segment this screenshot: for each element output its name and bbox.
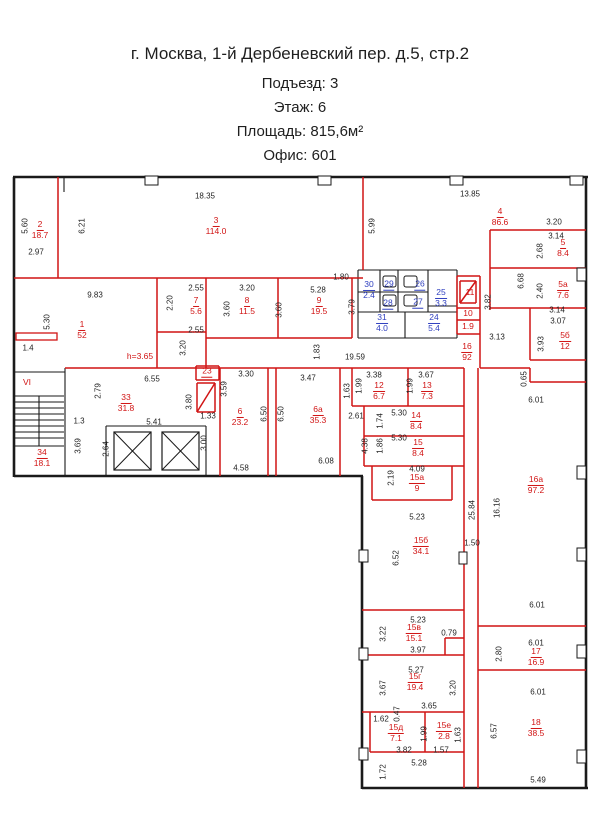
room-number: 15а xyxy=(409,473,425,484)
room-label: 11 xyxy=(465,288,476,298)
dimension-label: 3.93 xyxy=(537,336,546,352)
dimension-label: 2.79 xyxy=(94,383,103,399)
room-number: 2 xyxy=(37,220,44,231)
dimension-label: 1.80 xyxy=(333,273,349,282)
dimension-label: 3.07 xyxy=(550,317,566,326)
room-number: 7 xyxy=(193,296,200,307)
room-area: 86.6 xyxy=(492,218,509,228)
dimension-label: 5.28 xyxy=(411,759,427,768)
dimension-label: 2.97 xyxy=(28,248,44,257)
room-area: 16.9 xyxy=(528,658,545,668)
dimension-label: 3.82 xyxy=(396,746,412,755)
dimension-label: 1.72 xyxy=(379,764,388,780)
dimension-label: 25.84 xyxy=(468,500,477,520)
dimension-label: 3.67 xyxy=(418,371,434,380)
room-number: 1.9 xyxy=(461,322,475,332)
room-label: 15б34.1 xyxy=(413,536,430,556)
room-label: 245.4 xyxy=(428,313,440,333)
dimension-label: 2.61 xyxy=(348,412,364,421)
room-label: 10 xyxy=(462,309,473,319)
dimension-label: 1.4 xyxy=(22,344,33,353)
dimension-label: 1.86 xyxy=(376,438,385,454)
room-label: 1.9 xyxy=(461,322,475,332)
room-number: 31 xyxy=(376,313,387,324)
room-number: 27 xyxy=(412,298,423,309)
room-area: 114.0 xyxy=(206,227,227,237)
room-label: 1716.9 xyxy=(528,647,545,667)
dimension-label: 3.20 xyxy=(546,218,562,227)
room-number: 25 xyxy=(435,288,446,299)
dimension-label: 1.74 xyxy=(376,413,385,429)
dimension-label: 13.85 xyxy=(460,190,480,199)
dimension-label: 5.23 xyxy=(410,616,426,625)
room-label: 75.6 xyxy=(190,296,202,316)
room-area: 4.0 xyxy=(376,324,388,334)
dimension-label: 5.28 xyxy=(310,286,326,295)
room-label: 158.4 xyxy=(412,438,424,458)
dimension-label: 1.99 xyxy=(355,378,364,394)
room-area: 38.5 xyxy=(528,729,545,739)
dimension-label: 5.99 xyxy=(368,218,377,234)
room-area: 18.1 xyxy=(34,459,51,469)
room-label: 5а7.6 xyxy=(557,280,569,300)
room-area: 8.4 xyxy=(412,449,424,459)
room-area: 2.4 xyxy=(363,291,375,301)
dimension-label: 3.59 xyxy=(220,381,229,397)
room-label: 137.3 xyxy=(421,381,433,401)
room-number: 6а xyxy=(312,405,323,416)
dimension-label: 1.99 xyxy=(420,726,429,742)
room-area: 5.4 xyxy=(428,324,440,334)
room-area: 31.8 xyxy=(118,404,135,414)
room-number: 28 xyxy=(382,299,393,310)
dimension-label: 2.19 xyxy=(387,470,396,486)
dimension-label: 1.99 xyxy=(406,378,415,394)
room-number: 14 xyxy=(410,411,421,422)
room-area: 6.7 xyxy=(373,392,385,402)
dimension-label: 3.22 xyxy=(379,626,388,642)
dimension-label: 0.65 xyxy=(520,371,529,387)
room-label: 623.2 xyxy=(232,407,249,427)
room-label: 26 xyxy=(414,280,425,291)
room-label: 1838.5 xyxy=(528,718,545,738)
room-label: 58.4 xyxy=(557,238,569,258)
room-label: 253.3 xyxy=(435,288,447,308)
dimension-label: 1.83 xyxy=(313,344,322,360)
dimension-label: 3.79 xyxy=(348,299,357,315)
dimension-label: 1.50 xyxy=(464,539,480,548)
dimension-label: 0.79 xyxy=(441,629,457,638)
room-number: 18 xyxy=(530,718,541,729)
dimension-label: 3.30 xyxy=(238,370,254,379)
room-number: 29 xyxy=(383,280,394,291)
room-number: 15в xyxy=(406,623,422,634)
room-label: 15в15.1 xyxy=(406,623,423,643)
room-number: 4 xyxy=(497,207,504,218)
room-label: 218.7 xyxy=(32,220,49,240)
dimension-label: 4.09 xyxy=(409,465,425,474)
room-area: 8.4 xyxy=(557,249,569,259)
room-label: 126.7 xyxy=(373,381,385,401)
plan-note: VI xyxy=(23,377,31,387)
room-label: 148.4 xyxy=(410,411,422,431)
room-label: 15е2.8 xyxy=(436,721,452,741)
dimension-label: 3.60 xyxy=(223,301,232,317)
dimension-label: 3.20 xyxy=(239,284,255,293)
room-area: 23.2 xyxy=(232,418,249,428)
dimension-label: 6.68 xyxy=(517,273,526,289)
room-label: 28 xyxy=(382,299,393,310)
dimension-label: 6.01 xyxy=(528,396,544,405)
plan-note: h=3.65 xyxy=(127,351,153,361)
dimension-label: 2.40 xyxy=(536,283,545,299)
dimension-label: 5.41 xyxy=(146,418,162,427)
dimension-label: 1.3 xyxy=(73,417,84,426)
dimension-label: 19.59 xyxy=(345,353,365,362)
room-number: 6 xyxy=(237,407,244,418)
room-label: 5б12 xyxy=(559,331,571,351)
dimension-label: 6.52 xyxy=(392,550,401,566)
dimension-label: 6.55 xyxy=(144,375,160,384)
room-number: 17 xyxy=(530,647,541,658)
dimension-label: 6.50 xyxy=(277,406,286,422)
room-number: 15д xyxy=(388,723,404,734)
room-area: 3.3 xyxy=(435,299,447,309)
dimension-label: 6.21 xyxy=(78,218,87,234)
room-label: 919.5 xyxy=(311,296,328,316)
room-number: 3 xyxy=(213,216,220,227)
dimension-label: 5.30 xyxy=(391,434,407,443)
room-number: 8 xyxy=(244,296,251,307)
dimension-label: 2.80 xyxy=(495,646,504,662)
dimension-label: 3.00 xyxy=(200,435,209,451)
dimension-label: 18.35 xyxy=(195,192,215,201)
room-label: 1692 xyxy=(461,342,472,362)
room-label: 486.6 xyxy=(492,207,509,227)
room-number: 15е xyxy=(436,721,452,732)
room-label: 27 xyxy=(412,298,423,309)
room-area: 7.3 xyxy=(421,392,433,402)
dimension-label: 4.58 xyxy=(233,464,249,473)
room-number: 30 xyxy=(363,280,374,291)
room-label: 314.0 xyxy=(376,313,388,333)
room-area: 97.2 xyxy=(528,486,545,496)
dimension-label: 2.55 xyxy=(188,326,204,335)
room-number: 12 xyxy=(373,381,384,392)
dimension-label: 6.50 xyxy=(260,406,269,422)
dimension-label: 1.62 xyxy=(373,715,389,724)
room-number: 16 xyxy=(461,342,472,353)
dimension-label: 5.27 xyxy=(408,666,424,675)
dimension-label: 1.63 xyxy=(343,383,352,399)
room-number: 16а xyxy=(528,475,544,486)
dimension-label: 6.01 xyxy=(529,601,545,610)
page: { "header": { "line1": "г. Москва, 1-й Д… xyxy=(0,0,600,828)
room-number: 26 xyxy=(414,280,425,291)
room-number: 23 xyxy=(201,367,212,378)
dimension-label: 3.14 xyxy=(548,232,564,241)
dimension-label: 2.68 xyxy=(536,243,545,259)
room-area: 18.7 xyxy=(32,231,49,241)
dimension-label: 2.64 xyxy=(102,441,111,457)
dimension-label: 3.38 xyxy=(366,371,382,380)
dimension-label: 3.69 xyxy=(74,438,83,454)
dimension-label: 3.20 xyxy=(179,340,188,356)
room-number: 5б xyxy=(559,331,571,342)
dimension-label: 3.65 xyxy=(421,702,437,711)
dimension-label: 2.20 xyxy=(166,295,175,311)
room-label: 152 xyxy=(77,320,86,340)
room-number: 33 xyxy=(120,393,131,404)
dimension-label: 6.57 xyxy=(490,723,499,739)
room-number: 11 xyxy=(465,288,476,298)
dimension-label: 3.20 xyxy=(449,680,458,696)
room-area: 12 xyxy=(560,342,569,352)
room-number: 1 xyxy=(79,320,86,331)
dimension-label: 5.60 xyxy=(21,218,30,234)
dimension-label: 16.16 xyxy=(493,498,502,518)
dimension-label: 6.01 xyxy=(530,688,546,697)
room-label: 15г19.4 xyxy=(407,672,424,692)
room-number: 9 xyxy=(316,296,323,307)
dimension-label: 3.80 xyxy=(185,394,194,410)
room-area: 11.5 xyxy=(239,307,255,317)
dimension-label: 3.47 xyxy=(300,374,316,383)
dimension-label: 1.57 xyxy=(433,746,449,755)
floor-plan: 218.73114.0486.658.45а7.65б1215275.6811.… xyxy=(0,0,600,828)
room-area: 19.4 xyxy=(407,683,424,693)
room-number: 15 xyxy=(412,438,423,449)
dimension-label: 3.13 xyxy=(489,333,505,342)
room-number: 13 xyxy=(421,381,432,392)
room-label: 302.4 xyxy=(363,280,375,300)
room-area: 7.1 xyxy=(390,734,402,744)
room-number: 15б xyxy=(413,536,429,547)
room-area: 9 xyxy=(415,484,420,494)
dimension-label: 3.67 xyxy=(379,680,388,696)
room-label: 15а9 xyxy=(409,473,425,493)
room-area: 92 xyxy=(462,353,471,363)
room-label: 3418.1 xyxy=(34,448,51,468)
room-area: 5.6 xyxy=(190,307,202,317)
dimension-label: 3.82 xyxy=(484,294,493,310)
room-label: 23 xyxy=(201,367,212,378)
room-area: 8.4 xyxy=(410,422,422,432)
dimension-label: 3.60 xyxy=(275,302,284,318)
room-area: 7.6 xyxy=(557,291,569,301)
room-label: 29 xyxy=(383,280,394,291)
room-area: 15.1 xyxy=(406,634,423,644)
room-label: 811.5 xyxy=(239,296,255,316)
dimension-label: 0.47 xyxy=(393,706,402,722)
dimension-label: 5.30 xyxy=(391,409,407,418)
dimension-label: 1.33 xyxy=(200,412,216,421)
room-number: 5а xyxy=(557,280,568,291)
room-label: 3114.0 xyxy=(206,216,227,236)
dimension-label: 4.38 xyxy=(361,438,370,454)
floor-plan-labels: 218.73114.0486.658.45а7.65б1215275.6811.… xyxy=(0,0,600,828)
room-area: 2.8 xyxy=(438,732,450,742)
room-area: 52 xyxy=(77,331,86,341)
room-label: 3331.8 xyxy=(118,393,135,413)
room-area: 19.5 xyxy=(311,307,328,317)
room-label: 16а97.2 xyxy=(528,475,545,495)
room-label: 6а35.3 xyxy=(310,405,327,425)
room-area: 35.3 xyxy=(310,416,327,426)
dimension-label: 3.14 xyxy=(549,306,565,315)
dimension-label: 5.23 xyxy=(409,513,425,522)
room-number: 24 xyxy=(428,313,439,324)
room-number: 10 xyxy=(462,309,473,319)
dimension-label: 6.01 xyxy=(528,639,544,648)
dimension-label: 5.49 xyxy=(530,776,546,785)
dimension-label: 9.83 xyxy=(87,291,103,300)
room-number: 34 xyxy=(36,448,47,459)
dimension-label: 3.97 xyxy=(410,646,426,655)
dimension-label: 1.63 xyxy=(454,727,463,743)
dimension-label: 5.30 xyxy=(43,314,52,330)
room-label: 15д7.1 xyxy=(388,723,404,743)
room-area: 34.1 xyxy=(413,547,430,557)
dimension-label: 6.08 xyxy=(318,457,334,466)
dimension-label: 2.55 xyxy=(188,284,204,293)
